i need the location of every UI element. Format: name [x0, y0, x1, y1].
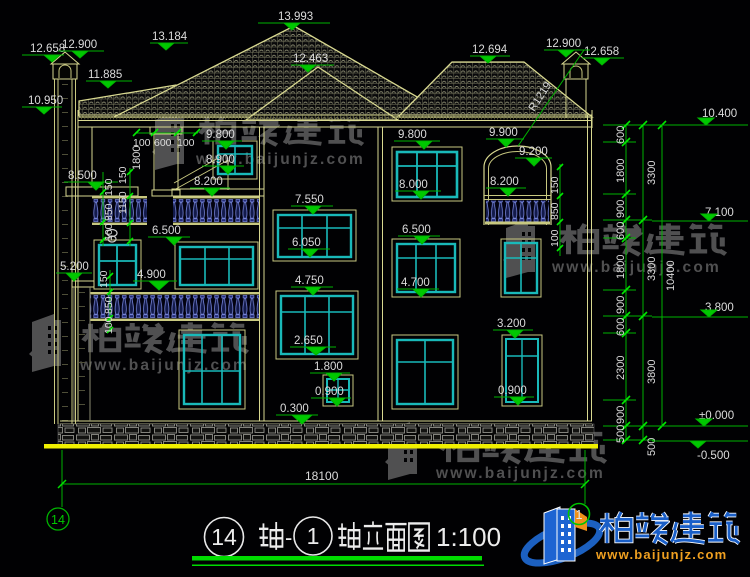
svg-text:5.200: 5.200 [60, 261, 89, 273]
svg-text:850: 850 [549, 202, 561, 220]
svg-text:8.500: 8.500 [68, 170, 97, 182]
svg-text:3800: 3800 [646, 360, 658, 384]
svg-text:2.650: 2.650 [294, 335, 323, 347]
svg-text:2300: 2300 [615, 356, 627, 380]
svg-text:11.885: 11.885 [88, 69, 122, 81]
svg-text:-: - [285, 525, 292, 550]
svg-text:9.900: 9.900 [489, 127, 518, 139]
svg-text:12.900: 12.900 [546, 38, 581, 50]
svg-text:12.694: 12.694 [472, 44, 508, 56]
svg-text:600: 600 [615, 222, 627, 240]
svg-text:100: 100 [103, 223, 115, 241]
svg-text:18100: 18100 [305, 469, 339, 483]
svg-text:12.900: 12.900 [62, 39, 97, 51]
svg-text:850: 850 [103, 203, 115, 221]
svg-text:1800: 1800 [131, 146, 143, 170]
svg-text:1: 1 [576, 508, 583, 522]
svg-text:900: 900 [615, 200, 627, 218]
svg-text:14: 14 [211, 524, 237, 550]
svg-text:0.900: 0.900 [315, 386, 344, 398]
svg-text:150: 150 [98, 270, 110, 288]
svg-text:6.500: 6.500 [402, 224, 431, 236]
svg-text:8.900: 8.900 [206, 154, 235, 166]
svg-text:900: 900 [615, 296, 627, 314]
svg-text:900: 900 [615, 406, 627, 424]
svg-text:13.184: 13.184 [152, 31, 188, 43]
svg-text:10.950: 10.950 [28, 95, 63, 107]
svg-text:150: 150 [117, 166, 129, 184]
svg-text:1.800: 1.800 [314, 361, 343, 373]
svg-text:6.500: 6.500 [152, 225, 181, 237]
svg-text:500: 500 [615, 425, 627, 443]
svg-text:9.800: 9.800 [398, 129, 427, 141]
svg-text:1800: 1800 [615, 159, 627, 183]
svg-text:14: 14 [51, 513, 65, 527]
svg-text:12.463: 12.463 [293, 53, 328, 65]
svg-text:9.200: 9.200 [519, 146, 548, 158]
svg-text:12.658: 12.658 [30, 43, 65, 55]
svg-text:4.700: 4.700 [401, 277, 430, 289]
svg-text:100: 100 [103, 316, 115, 334]
svg-text:600: 600 [615, 126, 627, 144]
svg-text:8.200: 8.200 [490, 176, 519, 188]
svg-text:3300: 3300 [646, 257, 658, 281]
svg-text:4.750: 4.750 [295, 275, 324, 287]
svg-text:3.200: 3.200 [497, 318, 526, 330]
svg-text:0.300: 0.300 [280, 403, 309, 415]
svg-text:www.baijunjz.com: www.baijunjz.com [435, 465, 605, 482]
svg-text:0.900: 0.900 [498, 385, 527, 397]
svg-text:12.658: 12.658 [584, 46, 619, 58]
svg-text:9.800: 9.800 [206, 129, 235, 141]
svg-text:600: 600 [615, 318, 627, 336]
svg-text:4.900: 4.900 [137, 269, 166, 281]
svg-text:1800: 1800 [615, 255, 627, 279]
svg-text:600: 600 [154, 137, 172, 149]
svg-text:850: 850 [103, 296, 115, 314]
svg-text:500: 500 [646, 438, 658, 456]
svg-text:10400: 10400 [665, 260, 677, 291]
svg-text:7.550: 7.550 [295, 194, 324, 206]
svg-text:100: 100 [549, 229, 561, 247]
svg-text:150: 150 [549, 176, 561, 194]
svg-text:13.993: 13.993 [278, 11, 313, 23]
svg-text:3300: 3300 [646, 161, 658, 185]
svg-text:1150: 1150 [117, 191, 129, 214]
svg-text:-0.500: -0.500 [697, 450, 730, 462]
svg-text:8.200: 8.200 [194, 176, 223, 188]
svg-text:1: 1 [307, 523, 320, 549]
svg-text:www.baijunjz.com: www.baijunjz.com [595, 547, 727, 562]
svg-text:www.baijunjz.com: www.baijunjz.com [551, 259, 721, 276]
svg-text:100: 100 [177, 137, 195, 149]
svg-text:150: 150 [103, 178, 115, 196]
svg-text:8.000: 8.000 [399, 179, 428, 191]
svg-text:1:100: 1:100 [436, 522, 501, 552]
svg-text:6.050: 6.050 [292, 237, 321, 249]
